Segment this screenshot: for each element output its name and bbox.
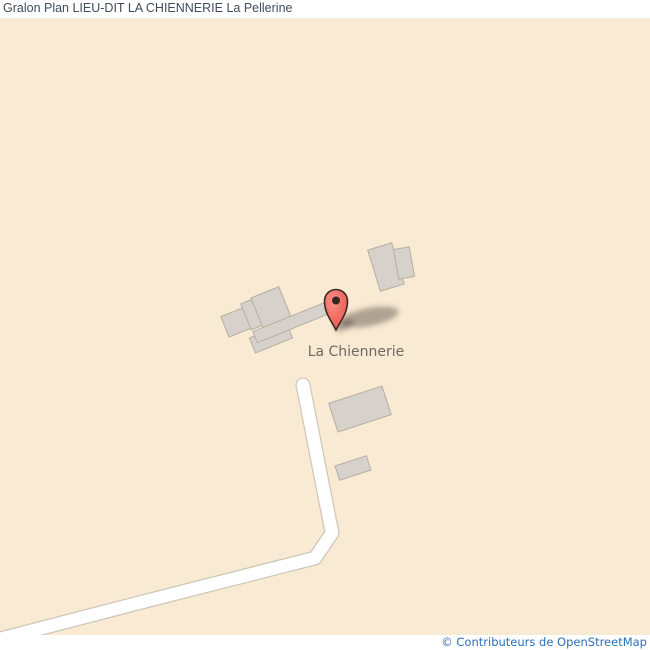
attribution-bar: © Contributeurs de OpenStreetMap — [0, 635, 650, 650]
gralon-map-page: Gralon Plan LIEU-DIT LA CHIENNERIE La Pe… — [0, 0, 650, 650]
osm-attribution-link[interactable]: © Contributeurs de OpenStreetMap — [441, 635, 647, 650]
building-cluster-west — [221, 287, 337, 353]
title-bar: Gralon Plan LIEU-DIT LA CHIENNERIE La Pe… — [0, 0, 650, 18]
building-cluster-south — [329, 386, 392, 480]
road — [0, 385, 332, 635]
building-cluster-northeast — [368, 243, 415, 291]
pin-dot — [332, 297, 340, 305]
road-surface — [0, 385, 332, 635]
map-canvas[interactable]: La Chiennerie — [0, 18, 650, 635]
map-svg: La Chiennerie — [0, 18, 650, 635]
building — [329, 386, 392, 432]
page-title: Gralon Plan LIEU-DIT LA CHIENNERIE La Pe… — [3, 0, 292, 17]
building — [335, 456, 371, 480]
place-label: La Chiennerie — [308, 344, 405, 360]
